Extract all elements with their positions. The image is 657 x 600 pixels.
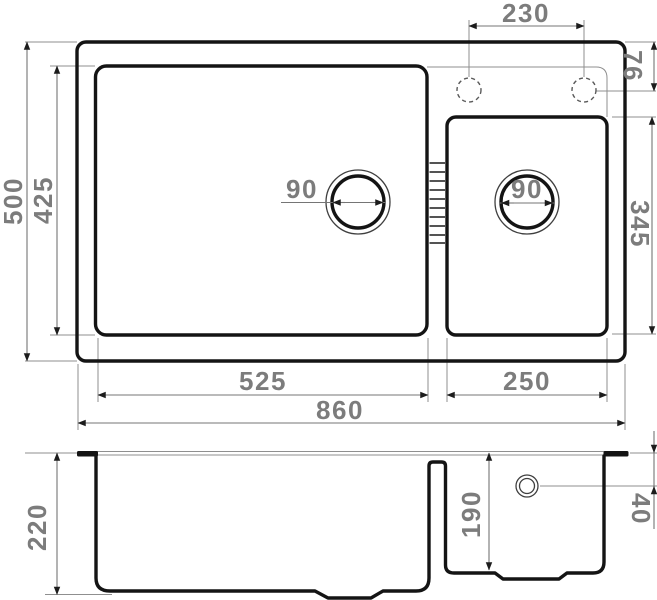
dim-second-bowl-length: 345 [625, 200, 655, 248]
faucet-hole-right [572, 78, 596, 102]
dim-main-bowl-depth: 425 [28, 176, 58, 224]
dim-overall-depth: 500 [0, 177, 28, 225]
drainboard-ribs [430, 163, 446, 243]
main-bowl [96, 66, 428, 335]
dim-second-drain-diameter: 90 [511, 174, 543, 204]
second-bowl [447, 117, 607, 335]
drawing-canvas: 230 76 345 500 425 90 90 525 250 860 [0, 0, 657, 600]
dim-second-bowl-height: 190 [456, 490, 486, 538]
dim-faucet-offset: 76 [618, 50, 648, 82]
dimension-lines-section [57, 431, 654, 595]
section-drain [516, 475, 538, 497]
top-view: 230 76 345 500 425 90 90 525 250 860 [0, 0, 656, 430]
dim-main-drain-diameter: 90 [286, 174, 318, 204]
dim-drain-center-offset: 40 [626, 493, 656, 525]
dim-main-bowl-height: 220 [22, 503, 52, 551]
dim-overall-width: 860 [316, 395, 364, 425]
dim-faucet-spacing: 230 [502, 0, 550, 28]
dim-second-bowl-width: 250 [503, 366, 551, 396]
rim-cap-right [604, 451, 629, 457]
section-profile [96, 456, 604, 598]
extension-lines-section [25, 453, 657, 595]
deck-ledge-outline [427, 67, 607, 117]
sink-technical-drawing: 230 76 345 500 425 90 90 525 250 860 [0, 0, 657, 600]
extension-lines-top-view [25, 20, 656, 430]
section-view: 220 190 40 [22, 431, 657, 598]
dim-main-bowl-width: 525 [239, 366, 287, 396]
dimension-lines-top-view [27, 26, 654, 423]
faucet-hole-left [457, 78, 481, 102]
